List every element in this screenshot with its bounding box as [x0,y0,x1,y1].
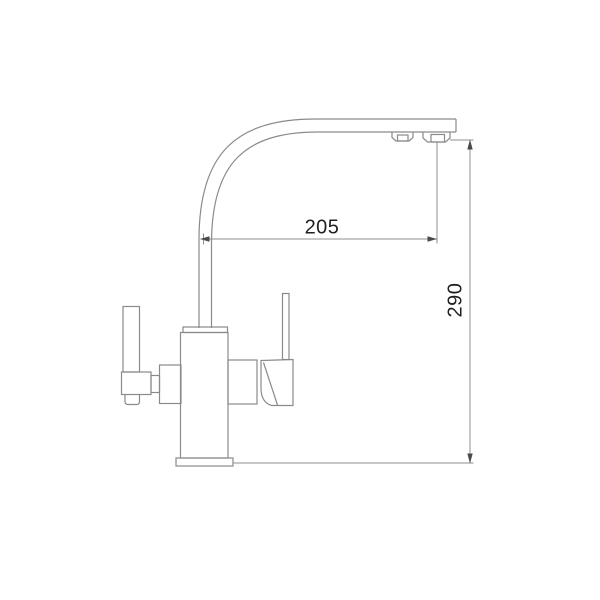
left-handle-lever [123,307,140,373]
right-handle-body [261,360,293,406]
arrow-down-icon [467,454,472,464]
body-right-arm [228,360,257,404]
left-handle-connector [151,376,160,393]
aerator-front-slot [398,135,409,141]
aerator-front [392,132,413,141]
left-mounting-block [160,365,182,404]
arrow-up-icon [467,140,472,150]
dimension-label-vertical: 290 [445,283,467,318]
faucet-technical-drawing: 205 290 [0,0,600,600]
dimension-horizontal: 205 [200,142,437,245]
faucet [122,119,457,466]
left-handle-block [122,372,152,395]
left-handle-foot [125,395,140,405]
body-collar [183,327,228,333]
drawing-canvas: 205 290 [0,0,600,600]
dimension-label-horizontal: 205 [305,217,340,239]
aerator-main [423,132,450,142]
faucet-body [181,333,229,459]
right-handle-pivot-line [264,363,278,406]
right-handle-lever [283,294,290,360]
arrow-left-icon [200,236,210,241]
dimensions: 205 290 [200,140,474,464]
aerator-main-slot [431,135,445,143]
arrow-right-icon [428,236,438,241]
base-flange [176,458,233,466]
